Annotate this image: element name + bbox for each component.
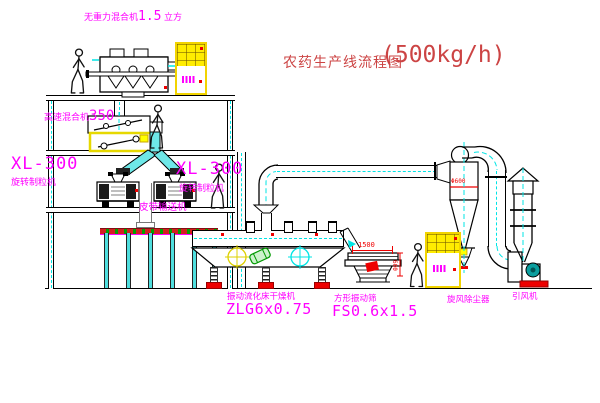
cabinet-louver-panel: [177, 44, 205, 68]
dim-line: [352, 250, 393, 251]
conveyor-leg: [148, 233, 153, 288]
screen-height-dim: 600: [391, 260, 398, 271]
building-column-left: [48, 95, 54, 289]
high-speed-mixer-name: 高速混合机: [44, 112, 89, 122]
control-cabinet-top: [175, 42, 207, 95]
label-granulator-left-model: XL-300: [11, 156, 78, 174]
exhaust-stack: [505, 165, 545, 265]
cabinet-door: [177, 68, 205, 92]
granulator-left-machine: [95, 172, 141, 208]
person-icon: [146, 104, 170, 150]
support-base: [314, 282, 330, 289]
high-speed-mixer-value: 350: [89, 108, 114, 124]
gravity-mixer-unit: 立方: [164, 12, 182, 22]
dryer-deck: [192, 230, 344, 247]
label-granulator-right-name: 旋转制粒机: [179, 184, 224, 193]
downcomer-duct: [488, 170, 506, 247]
dryer-spring-support: [318, 267, 326, 282]
dryer-port: [246, 221, 255, 233]
dryer-spring-support: [210, 267, 218, 282]
person-icon: [66, 48, 92, 95]
label-dryer-model: ZLG6x0.75: [226, 302, 312, 318]
label-granulator-right-model: XL-300: [176, 161, 243, 179]
gravity-mixer-name: 无重力混合机: [84, 12, 138, 22]
cabinet-door: [427, 255, 459, 284]
label-granulator-left-name: 旋转制粒机: [11, 178, 56, 187]
support-base: [206, 282, 222, 289]
label-high-speed-mixer: 高速混合机350: [44, 109, 114, 124]
duct-flange: [434, 162, 436, 180]
gravity-mixer-machine: [86, 40, 186, 98]
duct-flange: [485, 176, 507, 178]
duct-elbow-to-dryer: [246, 150, 282, 216]
cabinet-nameplate: [433, 265, 447, 272]
support-base: [258, 282, 274, 289]
control-cabinet-bottom: [425, 232, 461, 288]
conveyor-leg: [104, 233, 109, 288]
person-icon: [406, 242, 430, 289]
dim-tick: [392, 246, 393, 254]
screen-length-dim: 1500: [358, 241, 375, 249]
cyclone-dim-text: Φ600: [451, 178, 465, 185]
conveyor-leg: [126, 233, 131, 288]
label-belt-conveyor: 皮带输送机: [139, 203, 187, 213]
cabinet-louver-panel: [427, 234, 459, 255]
dryer-spring-support: [262, 267, 270, 282]
label-fan: 引风机: [512, 292, 538, 301]
dryer-port: [308, 221, 317, 233]
label-screen-model: FS0.6x1.5: [332, 304, 418, 320]
flow-diagram-canvas: Φ600: [0, 0, 600, 403]
label-cyclone: 旋风除尘器: [447, 295, 490, 304]
conveyor-leg: [170, 233, 175, 288]
cabinet-nameplate: [182, 76, 196, 83]
exhaust-duct-horizontal: [276, 165, 437, 178]
label-gravity-mixer: 无重力混合机1.5 立方: [84, 10, 182, 24]
dryer-port: [284, 221, 293, 233]
gravity-mixer-value: 1.5: [138, 9, 161, 24]
dim-tick: [352, 246, 353, 254]
diagram-title-capacity: (500kg/h): [381, 42, 506, 68]
